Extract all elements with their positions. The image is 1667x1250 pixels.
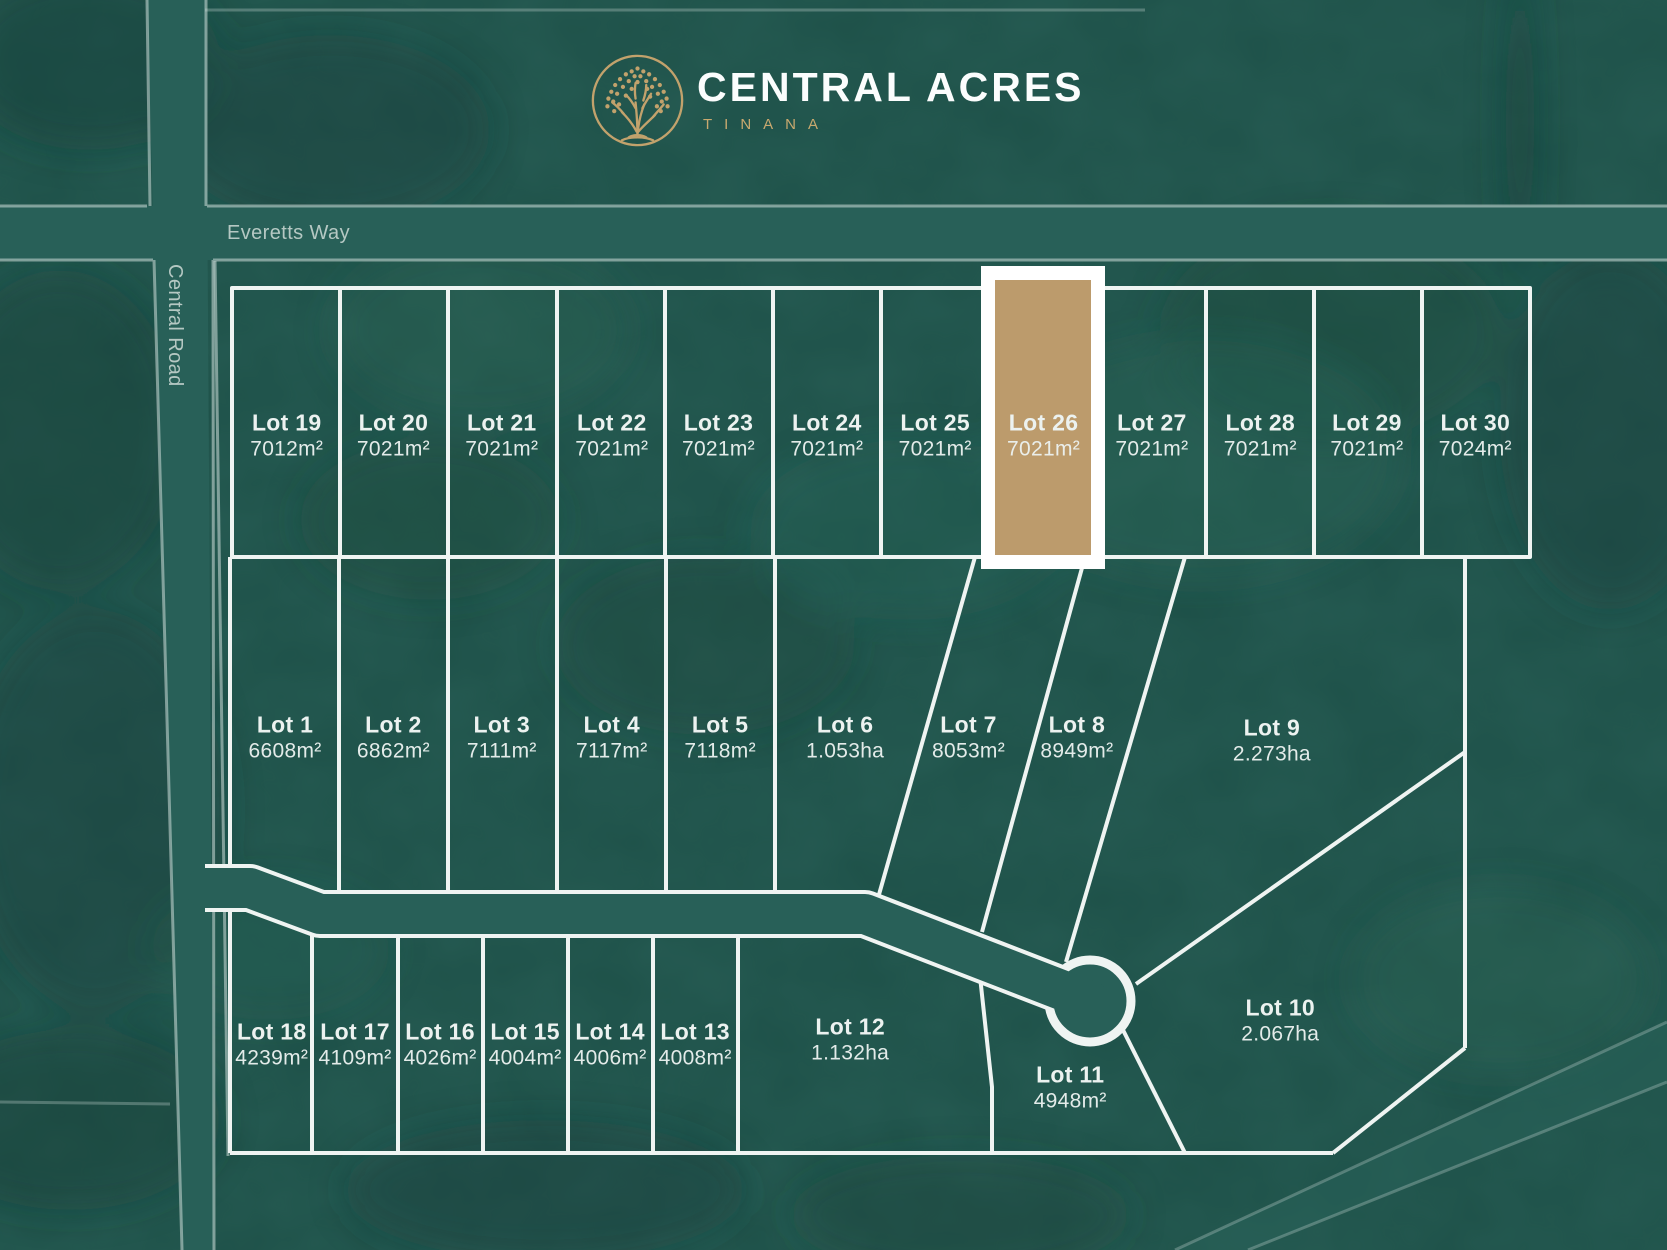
lot-name: Lot 14: [574, 1019, 647, 1046]
lot-area: 7021m²: [1007, 437, 1080, 463]
lot-name: Lot 3: [467, 711, 537, 738]
lot-area: 4239m²: [235, 1046, 308, 1072]
lot-name: Lot 4: [576, 711, 647, 738]
lot-9-label[interactable]: Lot 92.273ha: [1233, 715, 1311, 768]
lot-name: Lot 12: [811, 1014, 889, 1041]
lot-area: 7021m²: [682, 437, 755, 463]
lot-area: 2.273ha: [1233, 742, 1311, 768]
lot-area: 8053m²: [932, 738, 1005, 764]
lot-area: 7021m²: [1224, 437, 1297, 463]
lot-area: 7021m²: [899, 437, 972, 463]
lot-23-label[interactable]: Lot 237021m²: [682, 410, 755, 463]
lot-12-label[interactable]: Lot 121.132ha: [811, 1014, 889, 1067]
lot-area: 4026m²: [404, 1046, 477, 1072]
lot-name: Lot 30: [1439, 410, 1512, 437]
lot-area: 4008m²: [659, 1046, 732, 1072]
lot-name: Lot 9: [1233, 715, 1311, 742]
lot-area: 6608m²: [249, 738, 322, 764]
site-plan: Everetts Way Central Road Lot 16608m²Lot…: [0, 0, 1667, 1250]
lot-name: Lot 10: [1241, 995, 1319, 1022]
lot-name: Lot 16: [404, 1019, 477, 1046]
lot-name: Lot 29: [1330, 410, 1403, 437]
lot-name: Lot 28: [1224, 410, 1297, 437]
lot-name: Lot 20: [357, 410, 430, 437]
lot-area: 7021m²: [790, 437, 863, 463]
lot-area: 7021m²: [575, 437, 648, 463]
lot-10-label[interactable]: Lot 102.067ha: [1241, 995, 1319, 1048]
lot-area: 1.053ha: [806, 738, 884, 764]
lot-28-label[interactable]: Lot 287021m²: [1224, 410, 1297, 463]
lot-1-label[interactable]: Lot 16608m²: [249, 711, 322, 764]
lot-name: Lot 27: [1115, 410, 1188, 437]
lot-labels-layer: Lot 16608m²Lot 26862m²Lot 37111m²Lot 471…: [0, 0, 1667, 1250]
lot-area: 6862m²: [357, 738, 430, 764]
lot-area: 7021m²: [357, 437, 430, 463]
lot-name: Lot 19: [250, 410, 323, 437]
lot-16-label[interactable]: Lot 164026m²: [404, 1019, 477, 1072]
lot-22-label[interactable]: Lot 227021m²: [575, 410, 648, 463]
lot-area: 1.132ha: [811, 1041, 889, 1067]
lot-area: 7021m²: [1330, 437, 1403, 463]
lot-name: Lot 13: [659, 1019, 732, 1046]
lot-30-label[interactable]: Lot 307024m²: [1439, 410, 1512, 463]
lot-18-label[interactable]: Lot 184239m²: [235, 1019, 308, 1072]
lot-name: Lot 18: [235, 1019, 308, 1046]
lot-14-label[interactable]: Lot 144006m²: [574, 1019, 647, 1072]
lot-5-label[interactable]: Lot 57118m²: [684, 711, 755, 764]
lot-26-label[interactable]: Lot 267021m²: [1007, 410, 1080, 463]
lot-area: 4006m²: [574, 1046, 647, 1072]
lot-21-label[interactable]: Lot 217021m²: [465, 410, 538, 463]
lot-name: Lot 21: [465, 410, 538, 437]
lot-name: Lot 1: [249, 711, 322, 738]
lot-8-label[interactable]: Lot 88949m²: [1040, 711, 1113, 764]
lot-name: Lot 7: [932, 711, 1005, 738]
lot-3-label[interactable]: Lot 37111m²: [467, 711, 537, 764]
lot-name: Lot 23: [682, 410, 755, 437]
lot-24-label[interactable]: Lot 247021m²: [790, 410, 863, 463]
lot-27-label[interactable]: Lot 277021m²: [1115, 410, 1188, 463]
lot-name: Lot 17: [319, 1019, 392, 1046]
lot-area: 7118m²: [684, 738, 755, 764]
lot-6-label[interactable]: Lot 61.053ha: [806, 711, 884, 764]
lot-name: Lot 2: [357, 711, 430, 738]
lot-29-label[interactable]: Lot 297021m²: [1330, 410, 1403, 463]
lot-name: Lot 25: [899, 410, 972, 437]
lot-area: 4109m²: [319, 1046, 392, 1072]
lot-area: 7024m²: [1439, 437, 1512, 463]
lot-name: Lot 24: [790, 410, 863, 437]
lot-7-label[interactable]: Lot 78053m²: [932, 711, 1005, 764]
lot-area: 7117m²: [576, 738, 647, 764]
lot-19-label[interactable]: Lot 197012m²: [250, 410, 323, 463]
lot-13-label[interactable]: Lot 134008m²: [659, 1019, 732, 1072]
lot-name: Lot 26: [1007, 410, 1080, 437]
lot-area: 7021m²: [465, 437, 538, 463]
lot-20-label[interactable]: Lot 207021m²: [357, 410, 430, 463]
lot-area: 7021m²: [1115, 437, 1188, 463]
lot-area: 2.067ha: [1241, 1022, 1319, 1048]
lot-2-label[interactable]: Lot 26862m²: [357, 711, 430, 764]
lot-area: 4948m²: [1034, 1088, 1107, 1114]
lot-name: Lot 8: [1040, 711, 1113, 738]
lot-4-label[interactable]: Lot 47117m²: [576, 711, 647, 764]
lot-name: Lot 15: [489, 1019, 562, 1046]
lot-area: 4004m²: [489, 1046, 562, 1072]
lot-25-label[interactable]: Lot 257021m²: [899, 410, 972, 463]
lot-15-label[interactable]: Lot 154004m²: [489, 1019, 562, 1072]
lot-name: Lot 22: [575, 410, 648, 437]
lot-17-label[interactable]: Lot 174109m²: [319, 1019, 392, 1072]
lot-area: 7111m²: [467, 738, 537, 764]
lot-11-label[interactable]: Lot 114948m²: [1034, 1061, 1107, 1114]
lot-area: 8949m²: [1040, 738, 1113, 764]
lot-area: 7012m²: [250, 437, 323, 463]
lot-name: Lot 5: [684, 711, 755, 738]
lot-name: Lot 6: [806, 711, 884, 738]
lot-name: Lot 11: [1034, 1061, 1107, 1088]
